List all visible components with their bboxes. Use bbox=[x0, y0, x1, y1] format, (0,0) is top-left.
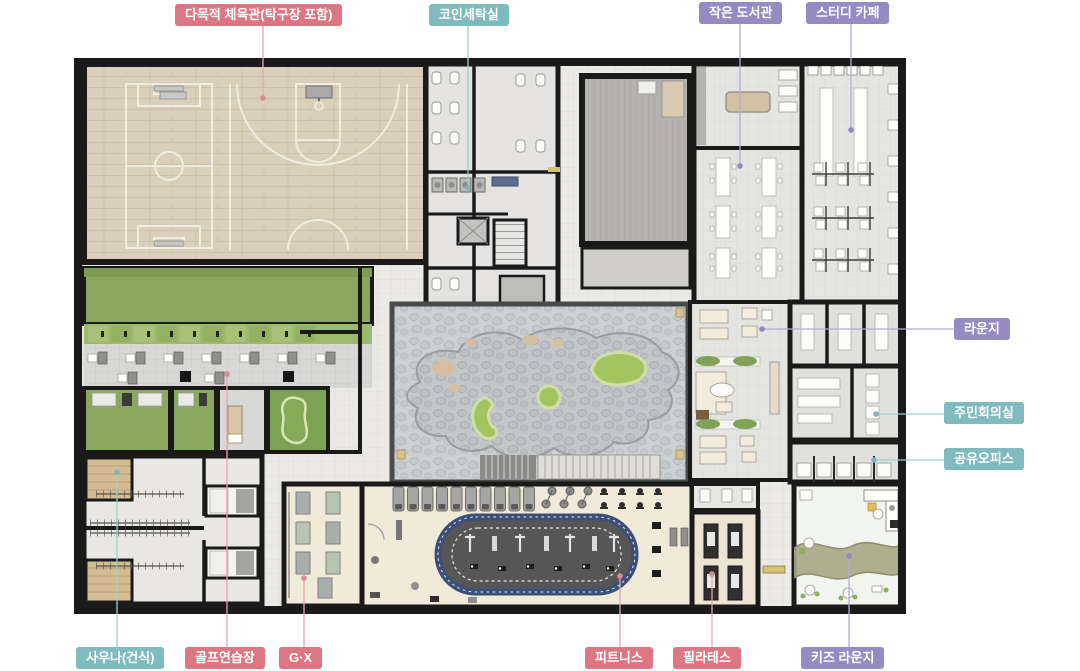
putting-green bbox=[282, 398, 307, 443]
shower-cell-top bbox=[206, 486, 258, 516]
vestibule bbox=[582, 248, 690, 288]
futsal-goal-bottom bbox=[154, 241, 184, 246]
futsal-goal-top bbox=[154, 86, 184, 91]
gym-bench-icon bbox=[160, 92, 186, 99]
door-threshold bbox=[548, 167, 560, 172]
label-fitness: 피트니스 bbox=[585, 647, 653, 669]
lounge-planter-2 bbox=[696, 419, 760, 429]
room-sauna bbox=[84, 456, 262, 604]
label-gx: G·X bbox=[279, 647, 322, 669]
room-multipurpose-dark bbox=[582, 76, 690, 288]
label-laundry: 코인세탁실 bbox=[429, 4, 509, 26]
floor-plan-drawing bbox=[0, 0, 1080, 671]
label-shared-office: 공유오피스 bbox=[944, 448, 1024, 470]
label-kids-lounge: 키즈 라운지 bbox=[801, 647, 884, 669]
label-gym: 다목적 체육관(탁구장 포함) bbox=[175, 4, 342, 26]
room-shared-office bbox=[790, 442, 902, 482]
room-study-cafe bbox=[802, 64, 902, 302]
label-sauna: 사우나(건식) bbox=[76, 647, 164, 669]
library-big-table bbox=[726, 92, 770, 112]
golf-practice-rooms bbox=[84, 388, 328, 452]
deck-steps bbox=[480, 455, 660, 479]
label-meeting-room: 주민회의실 bbox=[944, 402, 1024, 424]
bench bbox=[763, 566, 785, 573]
lawn-circle-center bbox=[538, 386, 560, 408]
column bbox=[180, 371, 191, 382]
label-library: 작은 도서관 bbox=[699, 2, 782, 24]
room-meeting-small bbox=[790, 302, 902, 366]
label-golf: 골프연습장 bbox=[185, 647, 265, 669]
room-gym bbox=[84, 64, 426, 262]
label-lounge: 라운지 bbox=[954, 318, 1010, 340]
stairs-core-icon bbox=[494, 220, 526, 266]
room-gx bbox=[284, 484, 362, 606]
floor-plan-canvas: 다목적 체육관(탁구장 포함) 코인세탁실 작은 도서관 스터디 카페 라운지 … bbox=[0, 0, 1080, 671]
column bbox=[283, 371, 294, 382]
room-kids-lounge bbox=[794, 484, 902, 607]
lounge-planter-1 bbox=[696, 356, 760, 366]
room-golf bbox=[84, 268, 372, 452]
room-library bbox=[694, 64, 802, 332]
label-study-cafe: 스터디 카페 bbox=[806, 2, 889, 24]
elliptical-machines bbox=[542, 487, 592, 508]
lawn-kidney-right bbox=[592, 352, 646, 384]
courtyard-garden bbox=[392, 304, 688, 482]
small-meeting-tables bbox=[801, 314, 888, 350]
elevator-icon bbox=[458, 218, 488, 244]
shower-cell-bottom bbox=[206, 548, 258, 578]
room-residents-meeting bbox=[790, 366, 902, 440]
office-desks bbox=[797, 463, 891, 477]
bookshelf-strip bbox=[697, 67, 706, 145]
library-shelves bbox=[779, 70, 797, 112]
room-fitness bbox=[362, 484, 692, 607]
label-pilates: 필라테스 bbox=[673, 647, 741, 669]
running-track bbox=[438, 517, 635, 592]
lounge-counter bbox=[770, 362, 779, 414]
room-laundry-toilets bbox=[426, 64, 560, 334]
